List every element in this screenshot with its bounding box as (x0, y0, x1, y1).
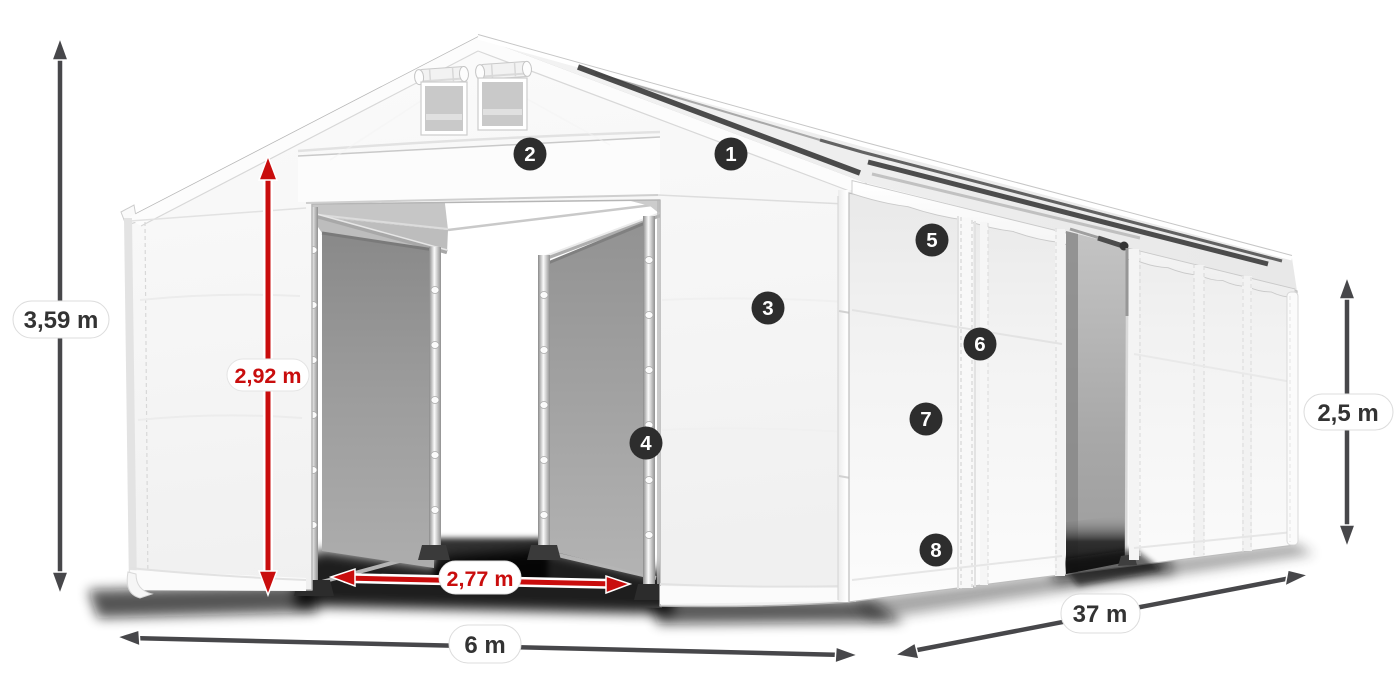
svg-text:4: 4 (640, 432, 652, 455)
svg-text:3: 3 (762, 297, 773, 320)
svg-text:2: 2 (524, 143, 535, 166)
svg-text:2,5 m: 2,5 m (1317, 400, 1378, 427)
svg-text:1: 1 (725, 143, 736, 166)
svg-text:6: 6 (974, 333, 985, 356)
svg-text:2,92 m: 2,92 m (235, 364, 302, 388)
svg-text:2,77 m: 2,77 m (447, 567, 514, 591)
svg-text:3,59 m: 3,59 m (24, 307, 99, 334)
svg-text:5: 5 (926, 229, 937, 252)
svg-text:37 m: 37 m (1073, 601, 1128, 628)
svg-text:6 m: 6 m (464, 632, 505, 659)
svg-text:7: 7 (920, 408, 931, 431)
svg-text:8: 8 (930, 539, 941, 562)
